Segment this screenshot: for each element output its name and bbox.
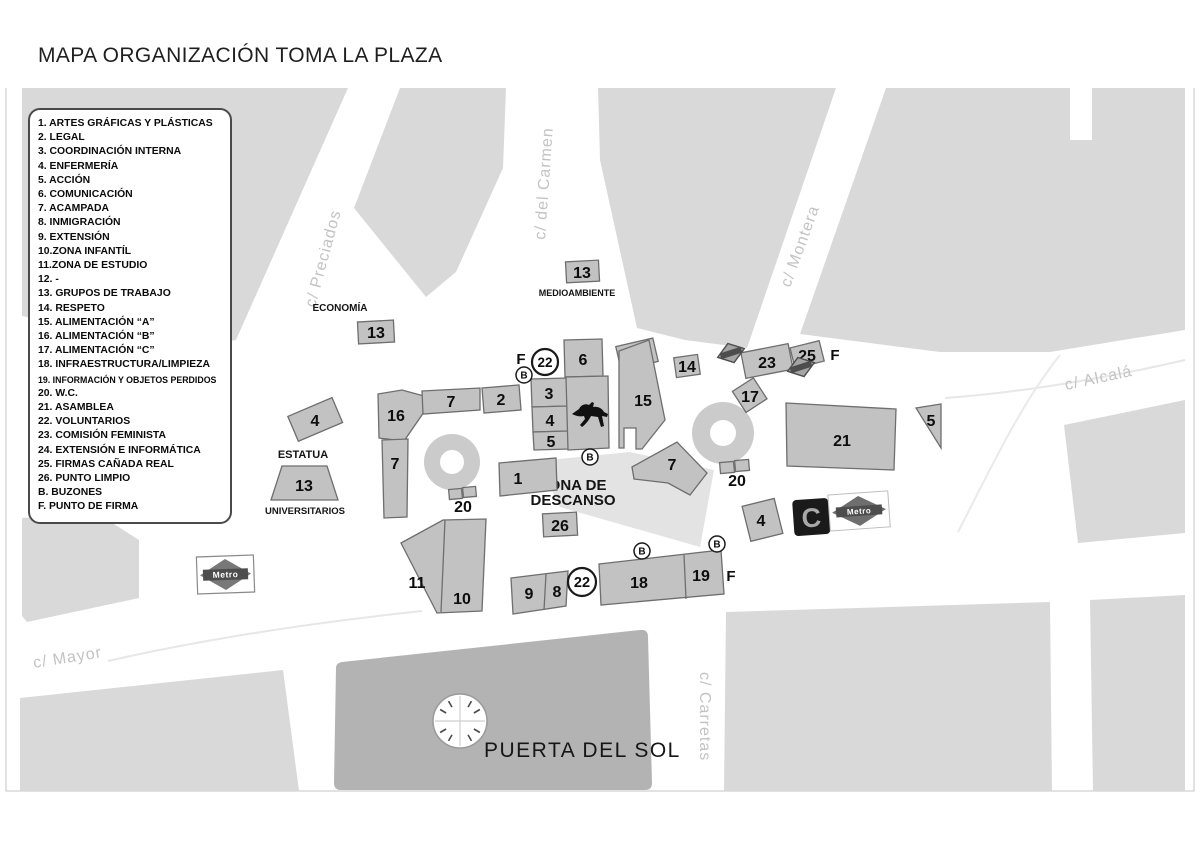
building-block-east	[1064, 400, 1185, 543]
svg-text:23: 23	[758, 355, 776, 372]
svg-text:1: 1	[514, 471, 523, 488]
clock-icon	[433, 694, 487, 748]
wc-west: 20	[449, 486, 477, 516]
legend-item: 3. COORDINACIÓN INTERNA	[38, 145, 226, 159]
puerta-del-sol-building	[334, 630, 652, 790]
svg-text:10: 10	[453, 591, 471, 608]
svg-text:7: 7	[668, 457, 677, 474]
street-label-carmen: c/ del Carmen	[532, 127, 557, 241]
street-label-alcala: c/ Alcalá	[1063, 363, 1134, 394]
punto-firma-marker: F	[726, 568, 735, 585]
svg-text:19: 19	[692, 568, 710, 585]
building-block-carmen-montera	[598, 88, 836, 348]
legend-item: 8. INMIGRACIÓN	[38, 216, 226, 230]
stand-5-center: 5	[533, 431, 570, 451]
legend-item: 23. COMISIÓN FEMINISTA	[38, 429, 226, 443]
legend-item: 4. ENFERMERÍA	[38, 160, 226, 174]
svg-text:11: 11	[409, 575, 426, 592]
svg-text:6: 6	[579, 352, 588, 369]
svg-text:21: 21	[833, 433, 851, 450]
stand-2: 2	[482, 385, 521, 413]
punto-firma-marker: F	[516, 351, 525, 368]
svg-text:B: B	[638, 547, 645, 558]
svg-text:4: 4	[757, 513, 766, 530]
svg-text:Metro: Metro	[213, 569, 239, 580]
svg-text:15: 15	[634, 393, 652, 410]
building-block-northeast	[800, 88, 1185, 352]
metro-logo: Metro	[828, 491, 890, 531]
svg-text:7: 7	[391, 456, 400, 473]
fountain-west	[424, 434, 480, 490]
punto-firma-marker: F	[830, 347, 839, 364]
svg-text:22: 22	[537, 355, 552, 370]
svg-text:20: 20	[728, 473, 746, 490]
stand-1: 1	[499, 458, 557, 496]
stand-14: 14	[674, 354, 701, 377]
svg-text:13: 13	[367, 325, 385, 342]
buzones-marker: B	[634, 543, 650, 559]
legend-item: 1. ARTES GRÁFICAS Y PLÁSTICAS	[38, 117, 226, 131]
stand-9-8: 9 8	[511, 571, 568, 614]
legend-item: 21. ASAMBLEA	[38, 401, 226, 415]
street-label-preciados: c/ Preciados	[302, 208, 344, 309]
svg-text:8: 8	[553, 584, 562, 601]
legend-item: 14. RESPETO	[38, 302, 226, 316]
stand-4-east: 4	[742, 498, 783, 541]
stand-13-universitarios: 13	[271, 466, 338, 500]
building-block-southeast	[1090, 595, 1185, 791]
buzones-marker: B	[709, 536, 725, 552]
legend-item: 12. -	[38, 273, 226, 287]
svg-text:B: B	[586, 453, 593, 464]
street-outline-mayor	[108, 611, 422, 661]
svg-text:20: 20	[454, 499, 472, 516]
legend-item: 11.ZONA DE ESTUDIO	[38, 259, 226, 273]
svg-text:4: 4	[546, 413, 555, 430]
stand-18-19: 18 19	[599, 550, 724, 605]
stand-11-10: 11 10	[401, 519, 486, 613]
legend-item: 2. LEGAL	[38, 131, 226, 145]
map-title: MAPA ORGANIZACIÓN TOMA LA PLAZA	[38, 44, 443, 68]
legend-item: 10.ZONA INFANTÍL	[38, 245, 226, 259]
stand-4-west: 4	[288, 398, 343, 442]
wc-east: 20	[720, 459, 750, 490]
stand-6: 6	[564, 339, 603, 377]
legend-item: 5. ACCIÓN	[38, 174, 226, 188]
svg-text:13: 13	[573, 265, 591, 282]
svg-text:B: B	[713, 540, 720, 551]
universitarios-label: UNIVERSITARIOS	[265, 506, 345, 517]
estatua-label: ESTATUA	[278, 449, 328, 461]
metro-logo: Metro	[196, 555, 254, 594]
svg-text:B: B	[520, 371, 527, 382]
map-page: { "title": "MAPA ORGANIZACIÓN TOMA LA PL…	[0, 0, 1200, 848]
svg-text:Metro: Metro	[847, 506, 872, 517]
legend-item: 20. W.C.	[38, 387, 226, 401]
legend-item: B. BUZONES	[38, 486, 226, 500]
legend-item: 25. FIRMAS CAÑADA REAL	[38, 458, 226, 472]
buzones-marker: B	[582, 449, 598, 465]
svg-text:9: 9	[525, 586, 534, 603]
legend-item: 24. EXTENSIÓN E INFORMÁTICA	[38, 444, 226, 458]
legend-item: 7. ACAMPADA	[38, 202, 226, 216]
legend-item: F. PUNTO DE FIRMA	[38, 500, 226, 514]
building-block-west	[22, 512, 139, 622]
street-label-carretas: c/ Carretas	[696, 672, 713, 761]
puerta-del-sol-label: PUERTA DEL SOL	[484, 739, 681, 762]
svg-text:5: 5	[927, 413, 936, 430]
legend-item: 19. INFORMACIÓN Y OBJETOS PERDIDOS	[38, 373, 226, 387]
svg-text:2: 2	[497, 392, 506, 409]
medioambiente-label: MEDIOAMBIENTE	[539, 288, 616, 298]
street-outline-plaza-east	[958, 355, 1060, 532]
svg-text:13: 13	[295, 478, 313, 495]
legend-item: 17. ALIMENTACIÓN “C”	[38, 344, 226, 358]
svg-text:17: 17	[741, 389, 759, 406]
stand-15: 15	[619, 340, 665, 449]
legend-box: 1. ARTES GRÁFICAS Y PLÁSTICAS 2. LEGAL 3…	[28, 108, 232, 524]
legend-item: 9. EXTENSIÓN	[38, 231, 226, 245]
legend-item: 13. GRUPOS DE TRABAJO	[38, 287, 226, 301]
svg-text:16: 16	[387, 408, 405, 425]
voluntarios-marker: 22	[532, 349, 558, 375]
building-block-south-carretas	[724, 602, 1052, 791]
legend-item: 18. INFRAESTRUCTURA/LIMPIEZA	[38, 358, 226, 372]
svg-text:4: 4	[311, 413, 320, 430]
legend-item: 6. COMUNICACIÓN	[38, 188, 226, 202]
stand-7-vertical: 7	[382, 439, 408, 518]
rest-zone-label-line2: DESCANSO	[530, 492, 615, 509]
svg-text:22: 22	[574, 575, 590, 591]
stand-4-center: 4	[532, 406, 569, 432]
stand-13-economia: 13	[357, 320, 394, 344]
voluntarios-marker: 22	[568, 568, 596, 596]
stand-21-asamblea: 21	[786, 403, 896, 470]
street-label-mayor: c/ Mayor	[32, 644, 103, 672]
svg-text:5: 5	[547, 434, 556, 451]
stand-13-medioambiente: 13	[565, 260, 599, 283]
legend-item: 16. ALIMENTACIÓN “B”	[38, 330, 226, 344]
legend-list: 1. ARTES GRÁFICAS Y PLÁSTICAS 2. LEGAL 3…	[38, 117, 226, 515]
svg-text:C: C	[801, 502, 823, 533]
legend-item: 26. PUNTO LIMPIO	[38, 472, 226, 486]
legend-item: 22. VOLUNTARIOS	[38, 415, 226, 429]
cercanias-logo: C	[792, 498, 830, 536]
stand-26: 26	[542, 512, 577, 537]
buzones-marker: B	[516, 367, 532, 383]
stand-23: 23	[741, 344, 793, 379]
building-block-north-center	[354, 88, 506, 297]
stand-5-triangle: 5	[916, 404, 941, 448]
svg-text:3: 3	[545, 386, 554, 403]
economia-label: ECONOMÍA	[313, 301, 368, 314]
svg-text:18: 18	[630, 575, 648, 592]
stand-3: 3	[531, 378, 568, 407]
svg-text:7: 7	[447, 394, 456, 411]
svg-text:14: 14	[678, 359, 696, 376]
building-block-southwest	[20, 670, 299, 791]
stand-16: 16	[378, 390, 424, 441]
stand-7-north: 7	[422, 388, 480, 414]
legend-item: 15. ALIMENTACIÓN “A”	[38, 316, 226, 330]
svg-text:26: 26	[551, 518, 569, 535]
